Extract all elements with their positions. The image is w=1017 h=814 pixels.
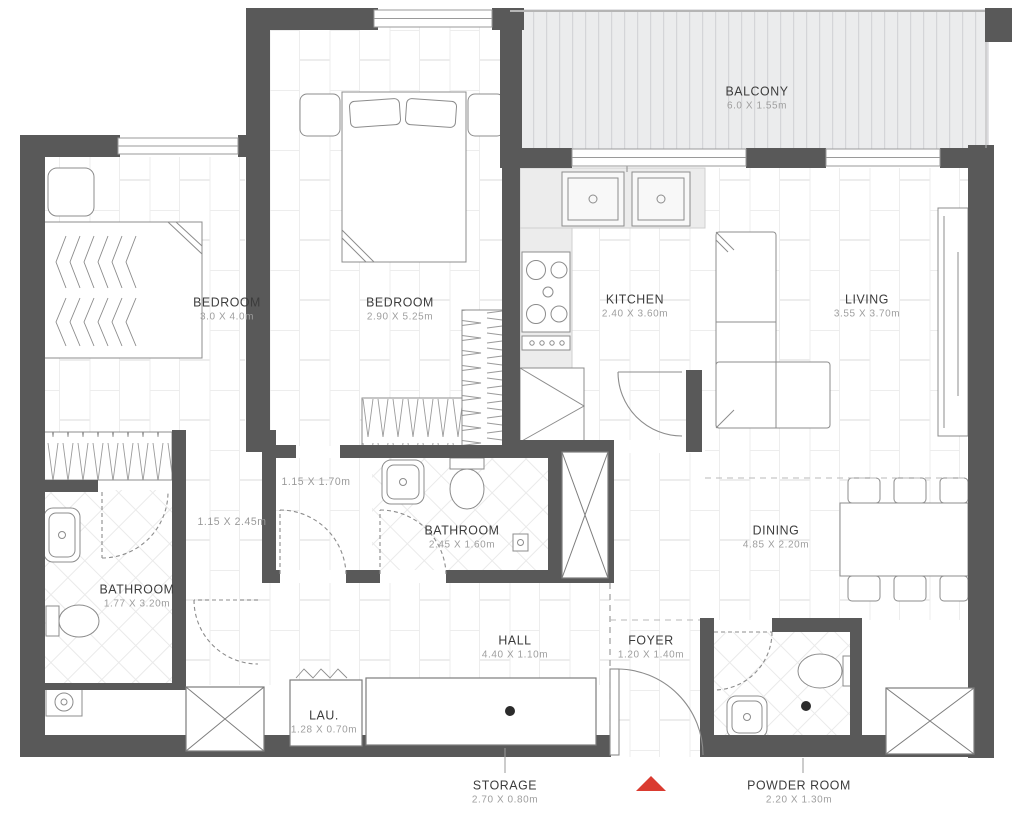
room-label-bedroom-left: BEDROOM 3.0 X 4.0m bbox=[193, 294, 261, 323]
room-name: POWDER ROOM bbox=[747, 777, 851, 793]
tv-console bbox=[938, 208, 968, 436]
dim-annotation-closet: 1.15 X 1.70m bbox=[281, 476, 350, 490]
dining-table bbox=[840, 503, 968, 576]
room-dims: 4.85 X 2.20m bbox=[743, 539, 809, 552]
room-label-bathroom-left: BATHROOM 1.77 X 3.20m bbox=[99, 581, 174, 610]
dim-annotation-corridor: 1.15 X 2.45m bbox=[197, 516, 266, 530]
nightstand bbox=[300, 94, 340, 136]
room-name: BATHROOM bbox=[99, 581, 174, 597]
toilet-tank bbox=[46, 606, 59, 636]
washer bbox=[46, 688, 82, 716]
floor-drain bbox=[513, 534, 528, 551]
nightstand bbox=[48, 168, 94, 216]
entrance-marker bbox=[636, 776, 666, 791]
chair bbox=[940, 478, 968, 503]
room-name: KITCHEN bbox=[602, 291, 668, 307]
room-label-hall: HALL 4.40 X 1.10m bbox=[482, 632, 548, 661]
room-dims: 2.90 X 5.25m bbox=[366, 311, 434, 324]
room-dims: 3.0 X 4.0m bbox=[193, 311, 261, 324]
room-name: BEDROOM bbox=[193, 294, 261, 310]
room-label-balcony: BALCONY 6.0 X 1.55m bbox=[725, 83, 788, 112]
room-name: FOYER bbox=[618, 632, 684, 648]
room-label-dining: DINING 4.85 X 2.20m bbox=[743, 522, 809, 551]
toilet bbox=[798, 654, 842, 688]
room-dims: 2.45 X 1.60m bbox=[424, 539, 499, 552]
floor-plan-page: BALCONY 6.0 X 1.55m BEDROOM 3.0 X 4.0m B… bbox=[0, 0, 1017, 814]
room-dims: 2.70 X 0.80m bbox=[472, 794, 538, 807]
chair bbox=[848, 576, 880, 601]
room-dims: 1.28 X 0.70m bbox=[291, 724, 357, 737]
room-dims: 4.40 X 1.10m bbox=[482, 649, 548, 662]
floor-plan-drawing bbox=[0, 0, 1017, 814]
room-label-powder-room: POWDER ROOM 2.20 X 1.30m bbox=[747, 777, 851, 806]
annotation-dims: 1.15 X 1.70m bbox=[281, 476, 350, 490]
room-label-kitchen: KITCHEN 2.40 X 3.60m bbox=[602, 291, 668, 320]
room-name: BALCONY bbox=[725, 83, 788, 99]
chair bbox=[940, 576, 968, 601]
room-label-laundry: LAU. 1.28 X 0.70m bbox=[291, 707, 357, 736]
fridge bbox=[520, 368, 584, 442]
room-name: BATHROOM bbox=[424, 522, 499, 538]
nightstand bbox=[468, 94, 504, 136]
kitchen-sink bbox=[632, 172, 690, 226]
room-dims: 2.40 X 3.60m bbox=[602, 308, 668, 321]
room-dims: 2.20 X 1.30m bbox=[747, 794, 851, 807]
storage-room bbox=[366, 678, 596, 745]
room-name: LIVING bbox=[834, 291, 900, 307]
annotation-dims: 1.15 X 2.45m bbox=[197, 516, 266, 530]
sink bbox=[382, 460, 424, 504]
chair bbox=[894, 576, 926, 601]
room-dims: 3.55 X 3.70m bbox=[834, 308, 900, 321]
room-name: HALL bbox=[482, 632, 548, 648]
toilet bbox=[59, 605, 99, 637]
entrance-door-leaf bbox=[610, 669, 619, 755]
toilet bbox=[450, 469, 484, 509]
chair bbox=[848, 478, 880, 503]
chair bbox=[894, 478, 926, 503]
sink bbox=[727, 696, 767, 738]
room-name: LAU. bbox=[291, 707, 357, 723]
room-name: DINING bbox=[743, 522, 809, 538]
toilet-tank bbox=[450, 458, 484, 469]
room-label-bathroom-middle: BATHROOM 2.45 X 1.60m bbox=[424, 522, 499, 551]
room-label-living: LIVING 3.55 X 3.70m bbox=[834, 291, 900, 320]
room-dims: 1.77 X 3.20m bbox=[99, 598, 174, 611]
room-dims: 1.20 X 1.40m bbox=[618, 649, 684, 662]
room-label-storage: STORAGE 2.70 X 0.80m bbox=[472, 777, 538, 806]
room-name: BEDROOM bbox=[366, 294, 434, 310]
room-dims: 6.0 X 1.55m bbox=[725, 100, 788, 113]
room-label-bedroom-middle: BEDROOM 2.90 X 5.25m bbox=[366, 294, 434, 323]
room-label-foyer: FOYER 1.20 X 1.40m bbox=[618, 632, 684, 661]
room-name: STORAGE bbox=[472, 777, 538, 793]
kitchen-sink bbox=[562, 172, 624, 226]
